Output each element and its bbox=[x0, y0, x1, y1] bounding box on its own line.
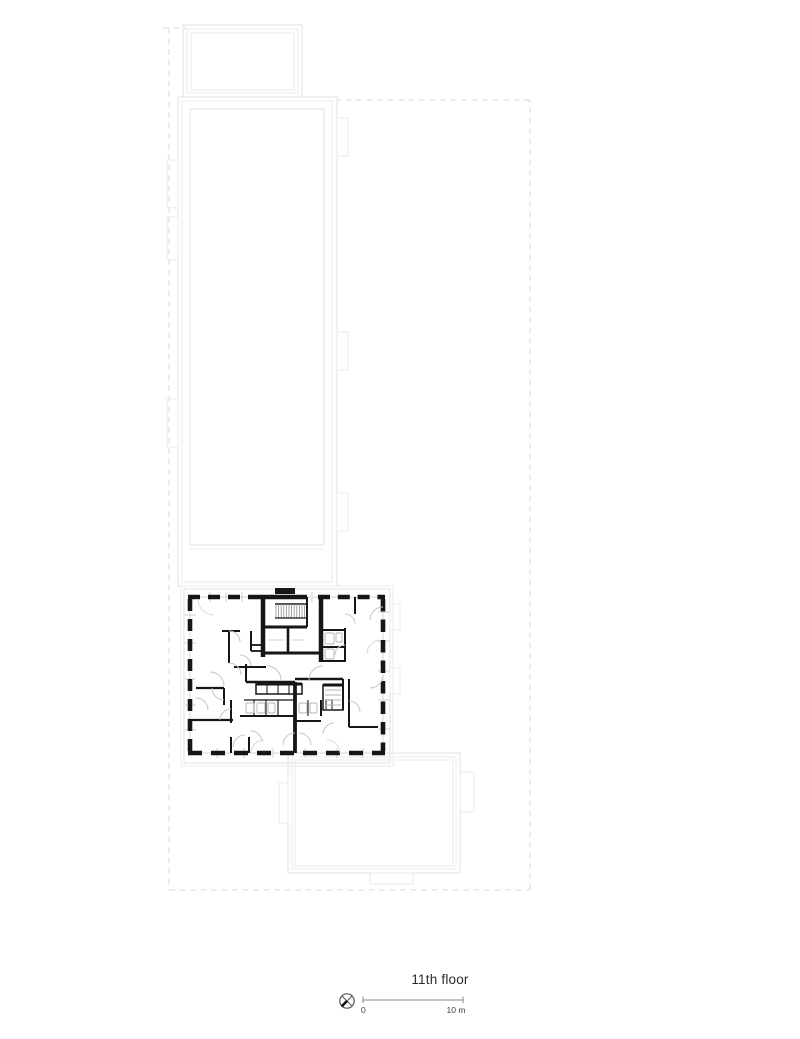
window-ticks bbox=[185, 592, 390, 758]
elevator-shafts bbox=[263, 627, 321, 653]
stair-hatch-icon bbox=[275, 604, 307, 618]
floor-plan-sheet: 0 10 m 11th floor bbox=[0, 0, 800, 1039]
scale-bar: 0 10 m bbox=[361, 997, 465, 1016]
scale-zero-label: 0 bbox=[361, 1005, 366, 1015]
floor-plan-drawing: 0 10 m 11th floor bbox=[0, 0, 800, 1039]
north-arrow-icon bbox=[340, 994, 354, 1008]
lower-building-outline bbox=[279, 753, 474, 884]
tower-outline bbox=[167, 97, 348, 586]
entrance-canopy bbox=[275, 588, 295, 594]
legend: 0 10 m 11th floor bbox=[340, 972, 469, 1015]
property-boundary bbox=[163, 28, 530, 890]
plan-surround bbox=[181, 586, 400, 766]
floor-plan bbox=[181, 586, 400, 766]
floor-label: 11th floor bbox=[411, 972, 469, 987]
scale-max-label: 10 m bbox=[447, 1005, 466, 1015]
door-arcs bbox=[196, 599, 383, 753]
roof-outline bbox=[183, 25, 302, 97]
interior-walls bbox=[188, 597, 378, 753]
stair-core bbox=[263, 597, 321, 662]
glazing-lines bbox=[188, 597, 385, 753]
